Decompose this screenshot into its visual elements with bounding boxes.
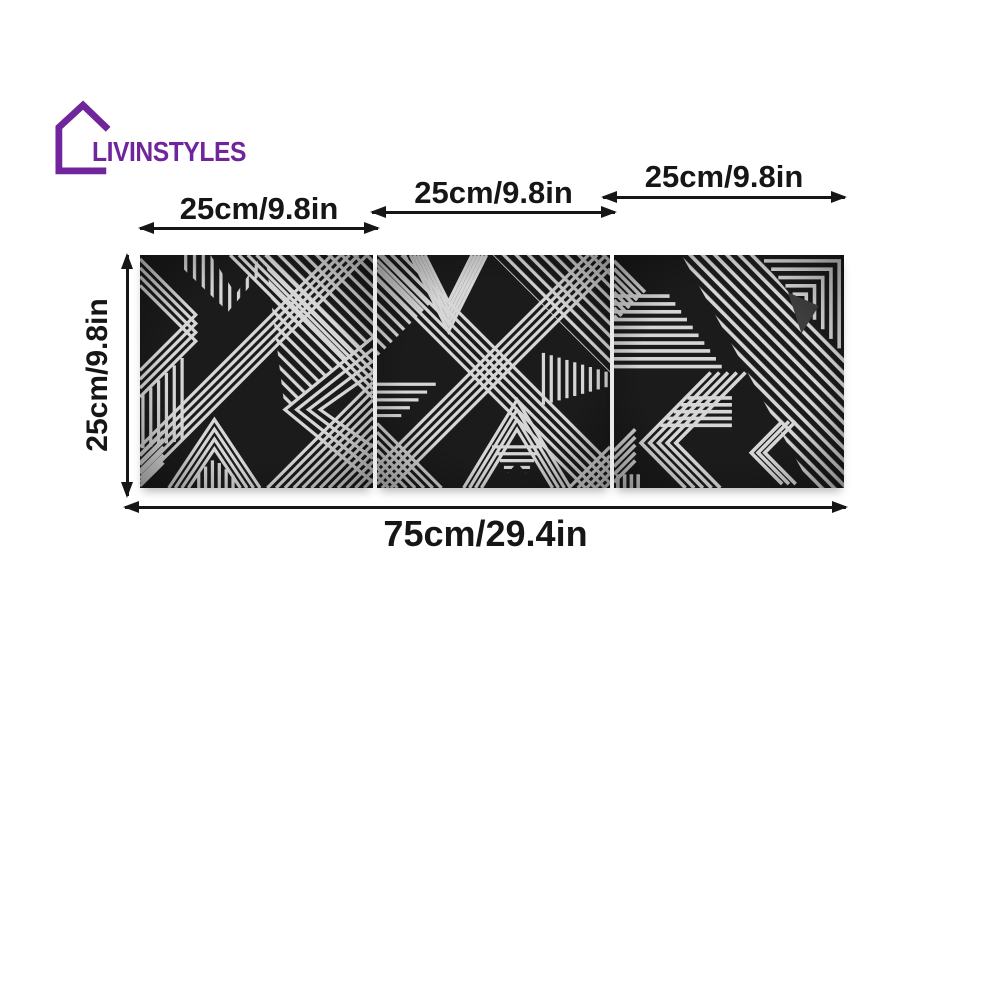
arrow-right-icon (831, 191, 847, 203)
panel-1-geometric-pattern (140, 255, 373, 488)
panel3-width-arrow (603, 196, 845, 199)
wall-art-panel-1 (140, 255, 373, 488)
arrow-right-icon (364, 222, 380, 234)
panel2-width-label: 25cm/9.8in (372, 177, 615, 208)
arrow-right-icon (601, 206, 617, 218)
arrow-right-icon (832, 501, 848, 513)
wall-art-panel-2 (377, 255, 610, 488)
arrow-left-icon (138, 222, 154, 234)
height-arrow (126, 255, 129, 496)
brand-name: LIVINSTYLES (92, 136, 246, 168)
panel3-width-label: 25cm/9.8in (603, 161, 845, 192)
total-width-label: 75cm/29.4in (125, 516, 846, 552)
panel1-width-arrow (140, 227, 378, 230)
panel1-width-label: 25cm/9.8in (140, 193, 378, 224)
arrow-down-icon (121, 482, 133, 498)
arrow-left-icon (123, 501, 139, 513)
arrow-up-icon (121, 253, 133, 269)
arrow-left-icon (370, 206, 386, 218)
panel-3-geometric-pattern (614, 255, 844, 488)
panel-height-label: 25cm/9.8in (83, 255, 113, 495)
brand-logo: LIVINSTYLES (55, 100, 315, 184)
wall-art-panel-3 (614, 255, 844, 488)
panel2-width-arrow (372, 211, 615, 214)
total-width-arrow (125, 506, 846, 509)
product-dimension-image: LIVINSTYLES 25cm/9.8in 25cm/9.8in 25cm/9… (0, 0, 1000, 1000)
panel-2-geometric-pattern (377, 255, 610, 488)
arrow-left-icon (601, 191, 617, 203)
